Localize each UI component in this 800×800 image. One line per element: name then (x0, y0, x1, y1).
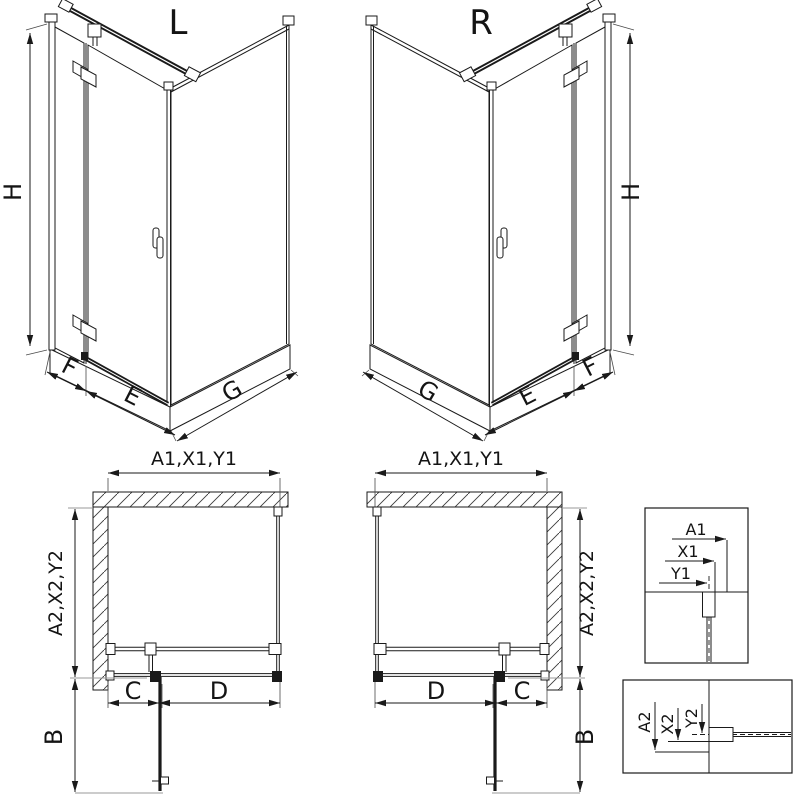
detail-bottom-dim-a2: A2 (635, 711, 654, 732)
iso-left-dim-height: H (0, 183, 27, 201)
plan-left-dim-fixed-segment: C (125, 677, 142, 705)
plan-left-dim-depth: A2,X2,Y2 (45, 550, 67, 636)
iso-view-right: R H F E G (362, 0, 645, 441)
plan-right-dim-depth: A2,X2,Y2 (576, 550, 598, 636)
technical-drawing-page: L H F E G R H F E G A1,X1,Y1 A2,X2,Y2 C … (0, 0, 800, 800)
iso-right-dim-height: H (617, 183, 645, 201)
plan-right-wall-top (367, 492, 562, 507)
plan-right-dim-door-projection: B (571, 729, 599, 745)
plan-left-wall-side (93, 507, 108, 690)
plan-left-wall-top (93, 492, 288, 507)
plan-view-left: A1,X1,Y1 A2,X2,Y2 C D B (40, 448, 288, 793)
detail-wall-profile-bottom: A2 X2 Y2 (623, 680, 792, 773)
plan-right-dim-door-segment: D (427, 677, 445, 705)
plan-left-dim-door-projection: B (40, 729, 68, 745)
plan-right-dim-width: A1,X1,Y1 (418, 448, 504, 470)
diagram-canvas: L H F E G R H F E G A1,X1,Y1 A2,X2,Y2 C … (0, 0, 800, 800)
plan-right-dim-fixed-segment: C (514, 677, 531, 705)
detail-wall-profile-top: A1 X1 Y1 (645, 508, 748, 663)
detail-bottom-dim-x2: X2 (658, 713, 677, 734)
detail-bottom-dim-y2: Y2 (682, 708, 701, 729)
iso-view-left: L H F E G (0, 0, 298, 441)
plan-right-wall-side (547, 507, 562, 690)
detail-top-dim-x1: X1 (677, 542, 698, 561)
iso-right-variant-label: R (469, 3, 493, 43)
detail-top-dim-a1: A1 (685, 520, 706, 539)
iso-left-variant-label: L (169, 3, 188, 43)
plan-left-dim-width: A1,X1,Y1 (151, 448, 237, 470)
detail-top-dim-y1: Y1 (670, 564, 691, 583)
plan-view-right: A1,X1,Y1 A2,X2,Y2 D C B (367, 448, 599, 793)
plan-left-dim-door-segment: D (210, 677, 228, 705)
